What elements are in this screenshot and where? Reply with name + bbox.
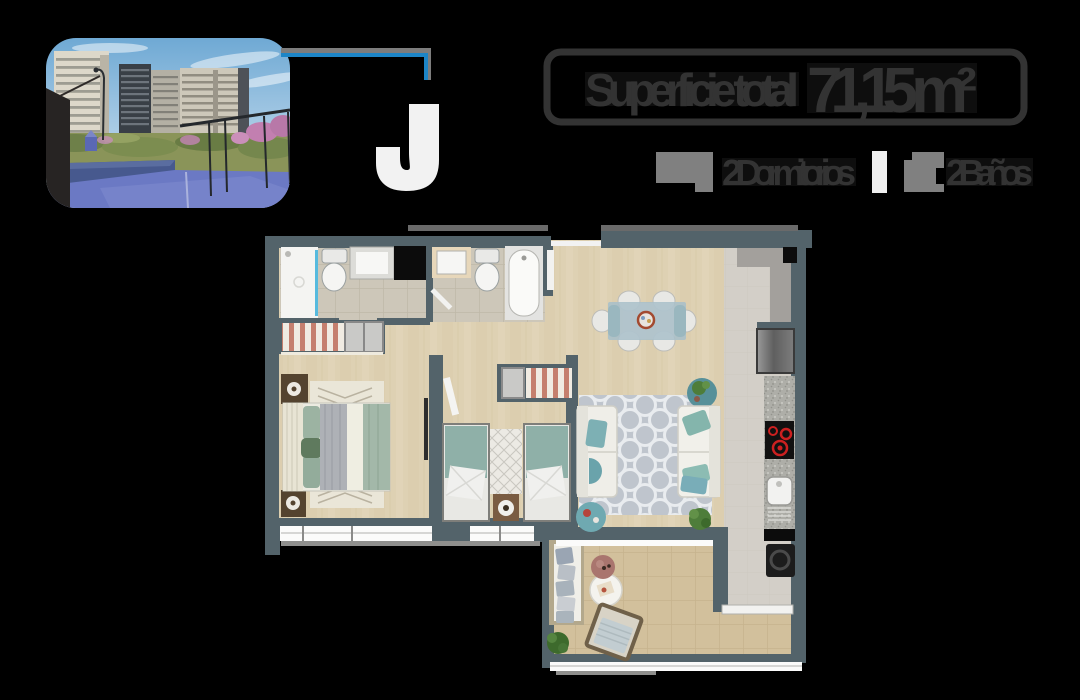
svg-text:71,15 m²: 71,15 m²: [807, 54, 977, 126]
svg-text:2 Baños: 2 Baños: [946, 152, 1033, 193]
svg-text:2 Dormitorios: 2 Dormitorios: [722, 152, 856, 193]
svg-text:Superficie total: Superficie total: [585, 64, 799, 116]
